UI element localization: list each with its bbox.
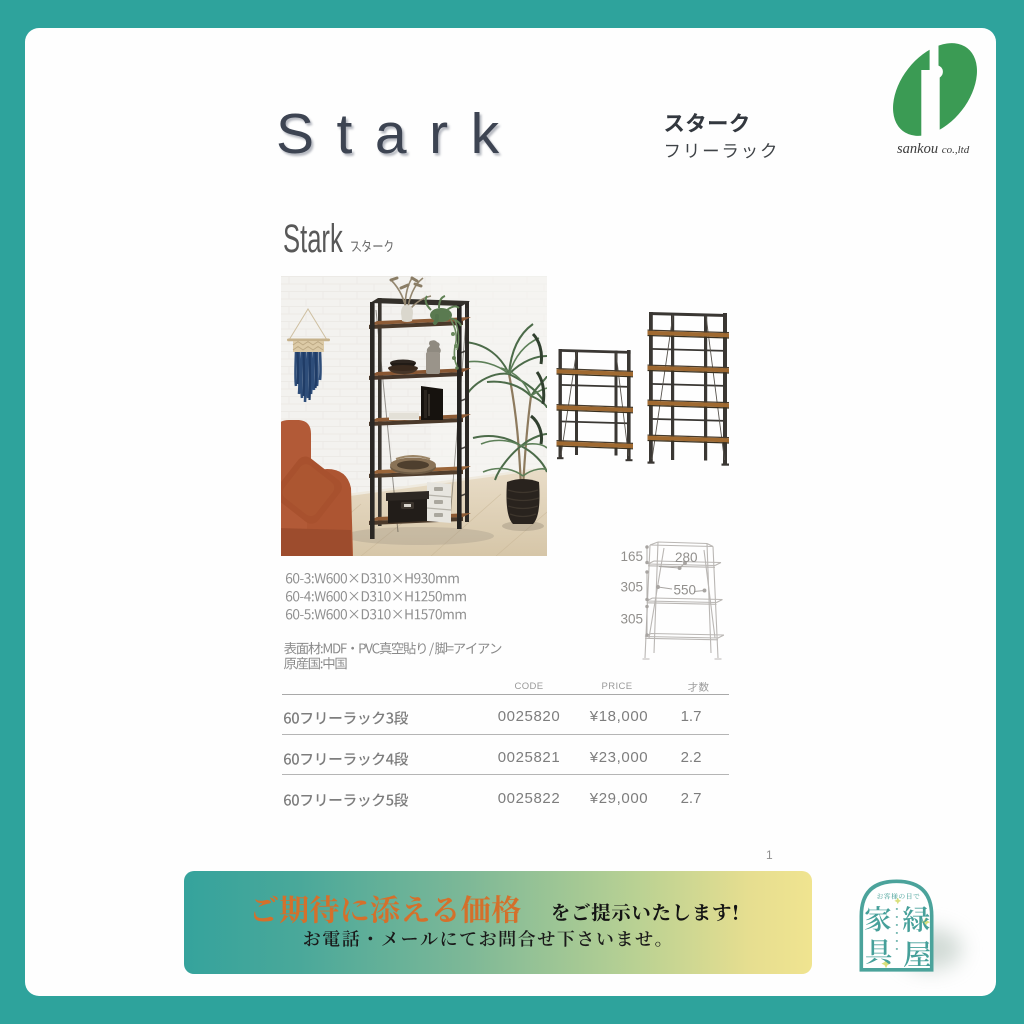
svg-text:305: 305 [620, 612, 643, 627]
svg-text:305: 305 [620, 580, 643, 595]
svg-text:280: 280 [675, 550, 698, 565]
svg-text:550: 550 [674, 583, 697, 598]
svg-text:165: 165 [620, 549, 643, 564]
